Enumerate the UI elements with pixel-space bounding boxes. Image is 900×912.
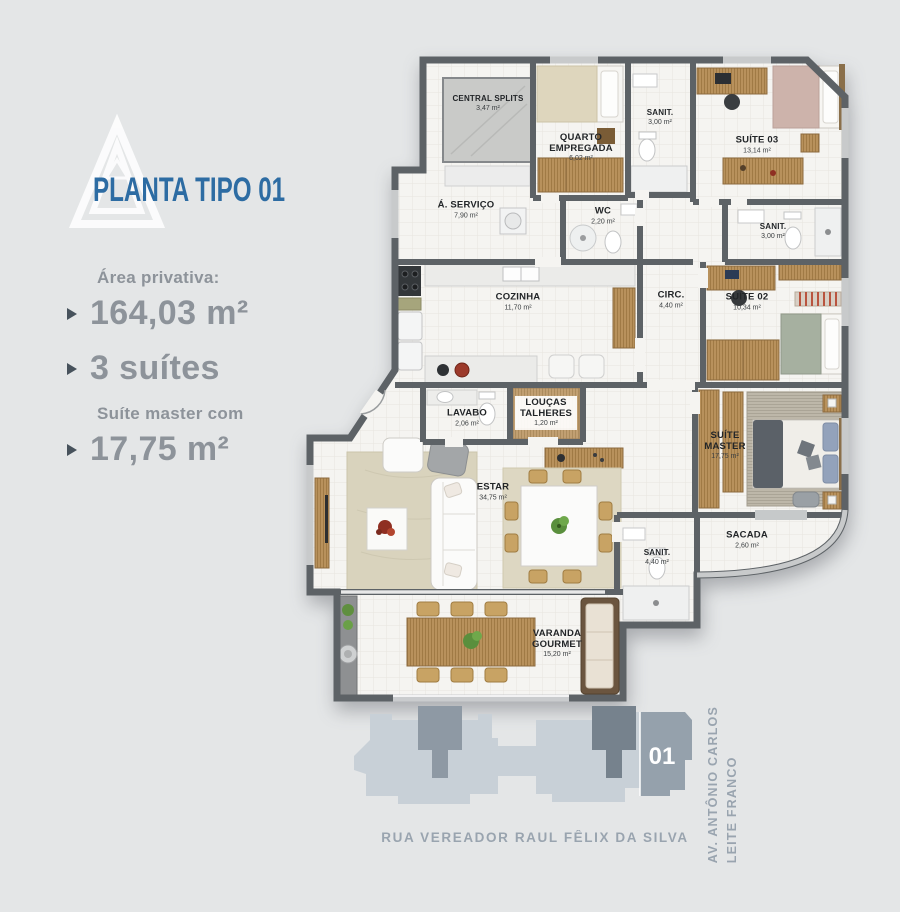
arrow-bullet-icon — [67, 363, 77, 375]
street-name-right-line1: AV. ANTÔNIO CARLOS — [704, 678, 723, 863]
tv-icon — [325, 495, 328, 543]
stat-area-label: Área privativa: — [97, 268, 313, 288]
dresser-icon — [723, 158, 803, 184]
arrow-bullet-icon — [67, 308, 77, 320]
stat-area-value: 164,03 m² — [90, 294, 249, 333]
sideboard-icon — [545, 448, 623, 468]
planter-grill-icon — [339, 596, 357, 696]
closet-icon — [723, 392, 743, 492]
sofa-icon — [581, 598, 619, 694]
washer-icon — [500, 208, 526, 234]
closet-icon — [699, 390, 719, 508]
street-name-right-line2: LEITE FRANCO — [723, 678, 742, 863]
stats-panel: Área privativa: 164,03 m² 3 suítes Suíte… — [63, 268, 313, 485]
site-plan-graphic: 01 — [340, 698, 730, 823]
clothes-rack-icon — [795, 292, 841, 306]
street-name-right: AV. ANTÔNIO CARLOS LEITE FRANCO — [704, 678, 742, 863]
stat-master-label: Suíte master com — [97, 404, 313, 424]
kitchen-appliances — [398, 266, 422, 370]
central-splits-box — [443, 78, 533, 186]
wardrobe-icon — [538, 158, 623, 192]
street-name-bottom: RUA VEREADOR RAUL FÊLIX DA SILVA — [381, 830, 688, 845]
unit-01-badge: 01 — [649, 743, 676, 770]
stat-area-row: 164,03 m² — [67, 294, 313, 333]
stat-suites-row: 3 suítes — [67, 349, 313, 388]
armchair-icon — [383, 438, 423, 472]
chair-icon — [549, 355, 574, 378]
coffee-table-icon — [367, 508, 407, 550]
stat-suites-value: 3 suítes — [90, 349, 220, 388]
page-title: PLANTA TIPO 01 — [93, 170, 285, 210]
sofa-icon — [431, 478, 477, 590]
bed-icon — [753, 418, 845, 490]
wardrobe-icon — [707, 340, 779, 380]
balcony-door — [755, 510, 807, 520]
dining-table-icon — [505, 470, 612, 583]
stat-master-row: 17,75 m² — [67, 430, 313, 469]
floor-plan-graphic — [295, 40, 875, 720]
chair-icon — [579, 355, 604, 378]
bed-icon — [773, 64, 845, 130]
bench-icon — [793, 492, 819, 507]
bed-icon — [781, 314, 843, 374]
pantry-icon — [513, 388, 580, 439]
pantry-cabinet-icon — [613, 288, 635, 348]
arrow-bullet-icon — [67, 444, 77, 456]
nightstand-icon — [801, 134, 819, 152]
stat-master-value: 17,75 m² — [90, 430, 229, 469]
building-footprint — [354, 706, 692, 804]
